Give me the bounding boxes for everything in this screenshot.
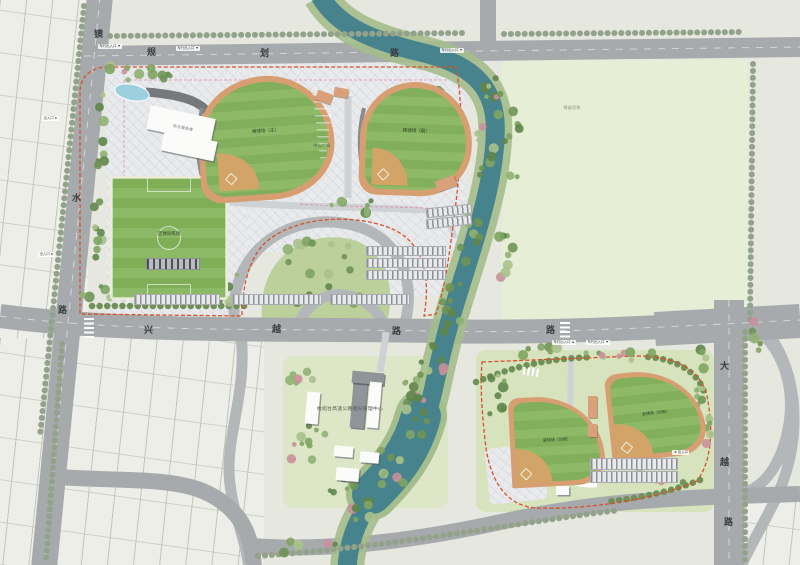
parking-row	[366, 270, 446, 280]
lower-site-building	[588, 424, 597, 437]
lower-site-building	[588, 396, 597, 418]
parking-row	[134, 294, 220, 305]
mgmt-center-label: 杭绍台高速公路绍兴管理中心	[294, 407, 406, 413]
parking-row	[590, 471, 678, 483]
reserved-parcel-label: 预留用地	[552, 106, 592, 111]
entrance-marker-text: 车行出入口	[178, 46, 195, 50]
baseball-field-second: 棒球场（副）	[358, 80, 474, 198]
entrance-marker-text: 出入口	[44, 116, 54, 120]
parking-row	[330, 294, 410, 305]
entrance-marker: 出入口 ►	[38, 252, 55, 257]
central-plaza-label: 中心广场	[300, 144, 344, 149]
entrance-marker-text: 车行出入口	[588, 340, 605, 344]
center-circle	[157, 226, 181, 250]
crosswalk	[84, 318, 94, 340]
entrance-marker-text: 车行出入口	[442, 48, 459, 52]
entrance-marker-text: 出入口	[40, 252, 50, 256]
penalty-box	[147, 178, 191, 192]
entrance-marker-text: 车行出入口	[554, 340, 571, 344]
soccer-field-label: 足球训练场	[112, 231, 226, 237]
bleacher-row	[146, 258, 200, 270]
road-label-dayue-2: 越	[720, 458, 729, 467]
road-label-jingshui-3: 路	[58, 306, 67, 315]
mgmt-building-small	[360, 451, 380, 464]
road-label-dayue-3: 路	[724, 518, 733, 527]
entrance-marker: 车行出入口 ▼	[98, 44, 122, 49]
road-label-guihua-2: 划	[260, 49, 269, 58]
road-label-xingyue-2: 越	[272, 325, 281, 334]
parking-row	[590, 458, 678, 470]
entrance-marker: 车行出入口 ▼	[176, 46, 200, 51]
mgmt-building-small	[334, 445, 354, 458]
entrance-marker-text: 车行出入口	[100, 44, 117, 48]
parking-row	[366, 246, 446, 256]
road-label-dayue-1: 大	[720, 362, 729, 371]
road-label-guihua-1: 规	[147, 48, 156, 57]
entrance-marker: 出入口 ►	[42, 116, 59, 121]
entrance-marker: 车行出入口 ▲	[552, 340, 576, 345]
lower-site-kiosk	[556, 486, 569, 495]
entrance-marker: 车行出入口 ▼	[440, 48, 464, 53]
road-label-xingyue-3: 路	[392, 327, 401, 336]
entrance-marker: 车行出入口 ▼	[586, 340, 610, 345]
road-label-jingshui-2: 水	[72, 194, 81, 203]
entrance-marker: ◄ 出入口	[672, 450, 689, 455]
training-field-right: 垒球场（训练）	[604, 365, 709, 463]
parking-row	[366, 258, 446, 268]
road-label-xingyue-4: 路	[546, 326, 555, 335]
mgmt-building-small	[335, 467, 359, 482]
road-label-guihua-3: 路	[390, 49, 399, 58]
road-south-branch	[46, 476, 254, 565]
entrance-marker-text: 出入口	[678, 450, 688, 454]
road-label-jingshui-1: 镜	[94, 30, 103, 39]
parking-row	[232, 294, 322, 305]
site-master-plan: 足球训练场 棒球场（主） 棒球场（副） 垒球场（训练） 垒球场（训练） 中心广场	[0, 0, 800, 565]
road-label-xingyue-1: 兴	[144, 326, 153, 335]
